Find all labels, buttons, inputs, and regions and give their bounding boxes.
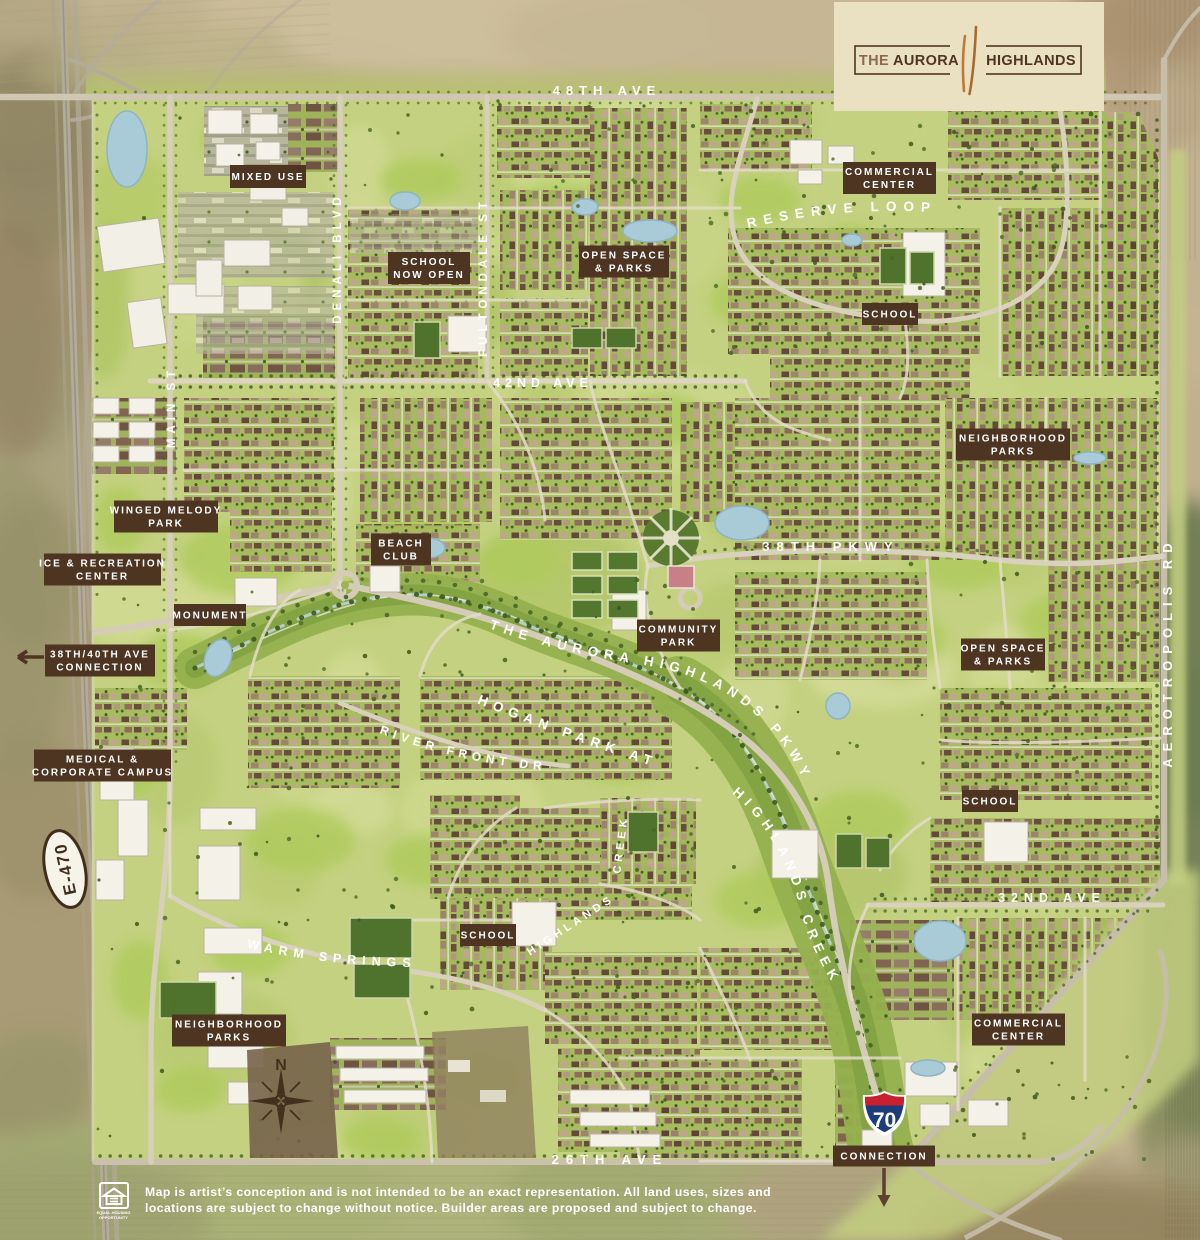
svg-text:PARK: PARK	[148, 519, 184, 530]
svg-text:PARK: PARK	[661, 638, 697, 649]
svg-text:26TH AVE: 26TH AVE	[552, 1152, 669, 1167]
svg-text:PARKS: PARKS	[991, 447, 1035, 458]
svg-text:42ND AVE: 42ND AVE	[493, 376, 593, 390]
svg-text:OPEN SPACE: OPEN SPACE	[582, 251, 667, 262]
svg-text:Map is artist’s conception and: Map is artist’s conception and is not in…	[145, 1185, 771, 1199]
svg-text:HIGHLANDS: HIGHLANDS	[986, 53, 1076, 69]
svg-text:38TH/40TH AVE: 38TH/40TH AVE	[50, 650, 150, 661]
svg-text:COMMUNITY: COMMUNITY	[639, 625, 719, 636]
svg-text:48TH AVE: 48TH AVE	[553, 83, 662, 98]
svg-text:COMMERCIAL: COMMERCIAL	[845, 167, 934, 178]
svg-text:CENTER: CENTER	[76, 572, 129, 583]
svg-text:CLUB: CLUB	[383, 552, 419, 563]
svg-text:AEROTROPOLIS RD: AEROTROPOLIS RD	[1160, 536, 1175, 767]
svg-text:MEDICAL &: MEDICAL &	[66, 755, 139, 766]
svg-text:SCHOOL: SCHOOL	[863, 310, 918, 321]
svg-text:CONNECTION: CONNECTION	[56, 663, 143, 674]
svg-text:CENTER: CENTER	[992, 1032, 1045, 1043]
svg-text:PARKS: PARKS	[207, 1033, 251, 1044]
svg-text:NEIGHBORHOOD: NEIGHBORHOOD	[959, 434, 1067, 445]
svg-text:COMMERCIAL: COMMERCIAL	[974, 1019, 1063, 1030]
svg-text:OPPORTUNITY: OPPORTUNITY	[99, 1215, 128, 1220]
svg-text:WINGED MELODY: WINGED MELODY	[110, 506, 223, 517]
svg-text:SCHOOL: SCHOOL	[963, 797, 1018, 808]
svg-text:& PARKS: & PARKS	[974, 657, 1032, 668]
svg-text:MONUMENT: MONUMENT	[173, 611, 248, 622]
svg-text:BEACH: BEACH	[378, 539, 424, 550]
svg-text:CONNECTION: CONNECTION	[840, 1152, 927, 1163]
svg-text:CENTER: CENTER	[863, 180, 916, 191]
svg-text:FULTONDALE ST: FULTONDALE ST	[478, 197, 490, 357]
svg-text:CORPORATE CAMPUS: CORPORATE CAMPUS	[32, 768, 173, 779]
svg-text:ICE & RECREATION: ICE & RECREATION	[39, 559, 166, 570]
svg-text:MIXED USE: MIXED USE	[231, 172, 304, 183]
svg-text:& PARKS: & PARKS	[595, 264, 653, 275]
svg-text:NOW OPEN: NOW OPEN	[393, 270, 465, 281]
svg-text:32ND AVE: 32ND AVE	[998, 891, 1106, 905]
svg-text:OPEN SPACE: OPEN SPACE	[961, 644, 1046, 655]
svg-text:DENALI BLVD: DENALI BLVD	[332, 192, 344, 323]
svg-text:70: 70	[873, 1109, 896, 1132]
svg-text:THE AURORA: THE AURORA	[859, 53, 959, 69]
svg-text:NEIGHBORHOOD: NEIGHBORHOOD	[175, 1020, 283, 1031]
svg-text:SCHOOL: SCHOOL	[402, 257, 457, 268]
svg-text:38TH PKWY: 38TH PKWY	[762, 539, 899, 554]
svg-text:MAIN ST: MAIN ST	[166, 366, 178, 448]
svg-text:locations are subject to chang: locations are subject to change without …	[145, 1201, 757, 1215]
svg-text:SCHOOL: SCHOOL	[461, 931, 516, 942]
